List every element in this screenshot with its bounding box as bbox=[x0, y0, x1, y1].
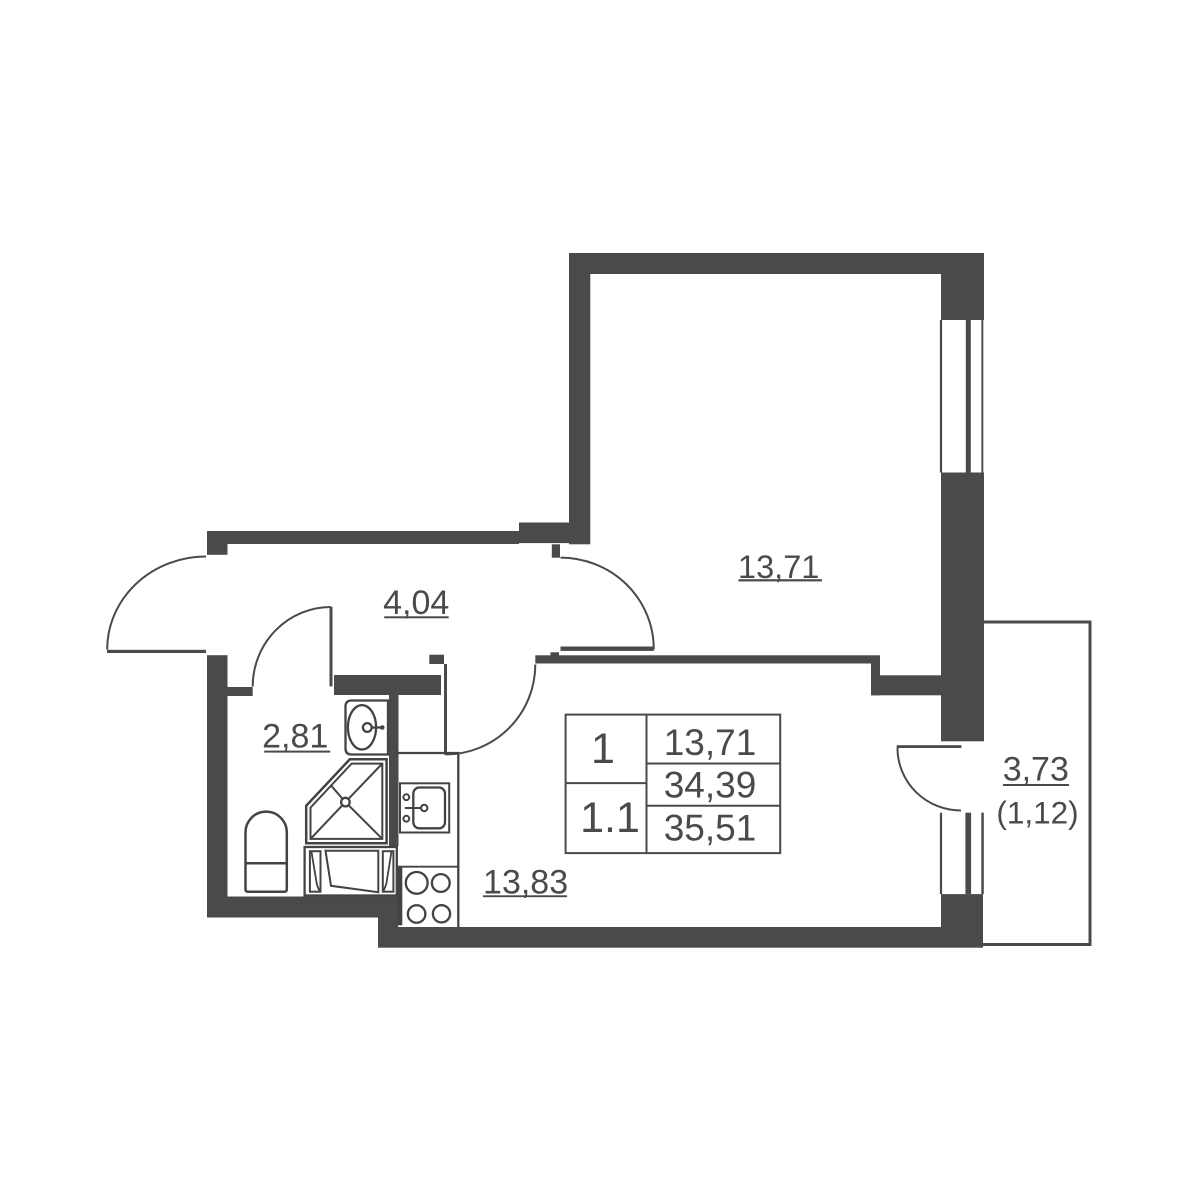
svg-text:(1,12): (1,12) bbox=[996, 795, 1078, 831]
svg-text:1.1: 1.1 bbox=[580, 794, 640, 842]
svg-text:34,39: 34,39 bbox=[664, 765, 757, 806]
svg-text:3,73: 3,73 bbox=[1003, 751, 1069, 789]
svg-text:1: 1 bbox=[591, 725, 615, 773]
svg-text:13,71: 13,71 bbox=[664, 722, 757, 763]
svg-text:35,51: 35,51 bbox=[664, 808, 757, 849]
svg-text:2,81: 2,81 bbox=[262, 718, 328, 756]
